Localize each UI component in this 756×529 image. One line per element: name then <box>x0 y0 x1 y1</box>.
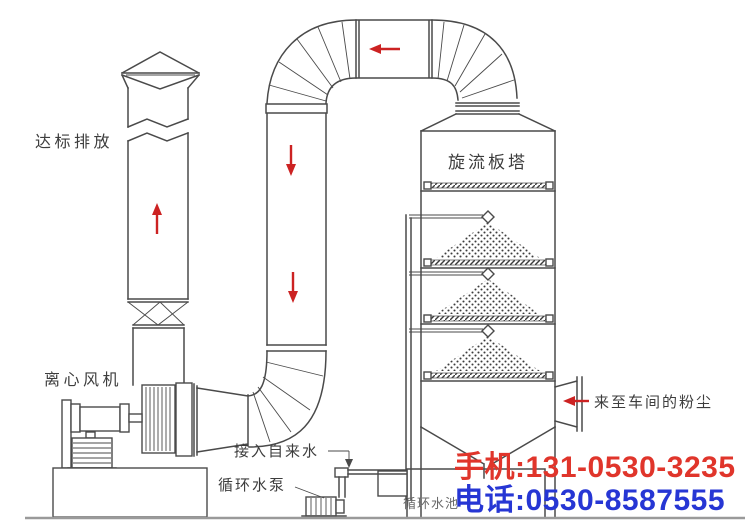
flow-arrow-up <box>152 203 162 234</box>
tap-water-line <box>328 451 353 468</box>
contact-info: 手机:131-0530-3235 电话:0530-8587555 <box>454 451 736 517</box>
pool-label: 循环水池 <box>403 496 459 511</box>
stack-transition <box>128 299 188 328</box>
swirl-plate-4 <box>421 372 555 381</box>
flow-arrow-down-1 <box>286 145 296 176</box>
swirl-plate-2 <box>421 259 555 268</box>
bottom-elbow <box>248 345 326 447</box>
exhaust-stack <box>122 52 199 385</box>
scrubber-diagram: 达标排放 离心风机 <box>0 0 756 529</box>
flow-arrow-left <box>369 44 400 54</box>
stack-rain-cap <box>122 52 199 89</box>
fan-label: 离心风机 <box>44 371 122 389</box>
diagram-canvas: 达标排放 离心风机 <box>0 0 756 529</box>
spray-level-3 <box>409 325 540 371</box>
swirl-plate-3 <box>421 315 555 324</box>
emission-label: 达标排放 <box>35 133 113 151</box>
mobile-number: 手机:131-0530-3235 <box>454 451 736 484</box>
right-elbow <box>432 20 519 114</box>
pump-label: 循环水泵 <box>218 477 286 494</box>
swirl-plate-1 <box>421 182 555 191</box>
tower-label: 旋流板塔 <box>448 153 528 172</box>
spray-level-1 <box>409 211 540 258</box>
spray-level-2 <box>409 268 540 314</box>
electric-motor <box>68 432 116 468</box>
left-elbow <box>267 20 356 103</box>
stack-break-symbol <box>128 119 188 141</box>
fan-foundation <box>53 468 207 517</box>
dust-inlet-label: 来至车间的粉尘 <box>594 394 713 411</box>
spray-riser-pipe <box>406 215 411 500</box>
flow-arrow-down-2 <box>288 272 298 303</box>
fan-casing <box>176 383 192 456</box>
flow-arrow-inlet <box>563 396 589 406</box>
tap-water-label: 接入自来水 <box>234 443 319 460</box>
dust-inlet <box>555 377 589 431</box>
centrifugal-fan <box>53 383 248 517</box>
phone-number: 电话:0530-8587555 <box>454 484 725 517</box>
